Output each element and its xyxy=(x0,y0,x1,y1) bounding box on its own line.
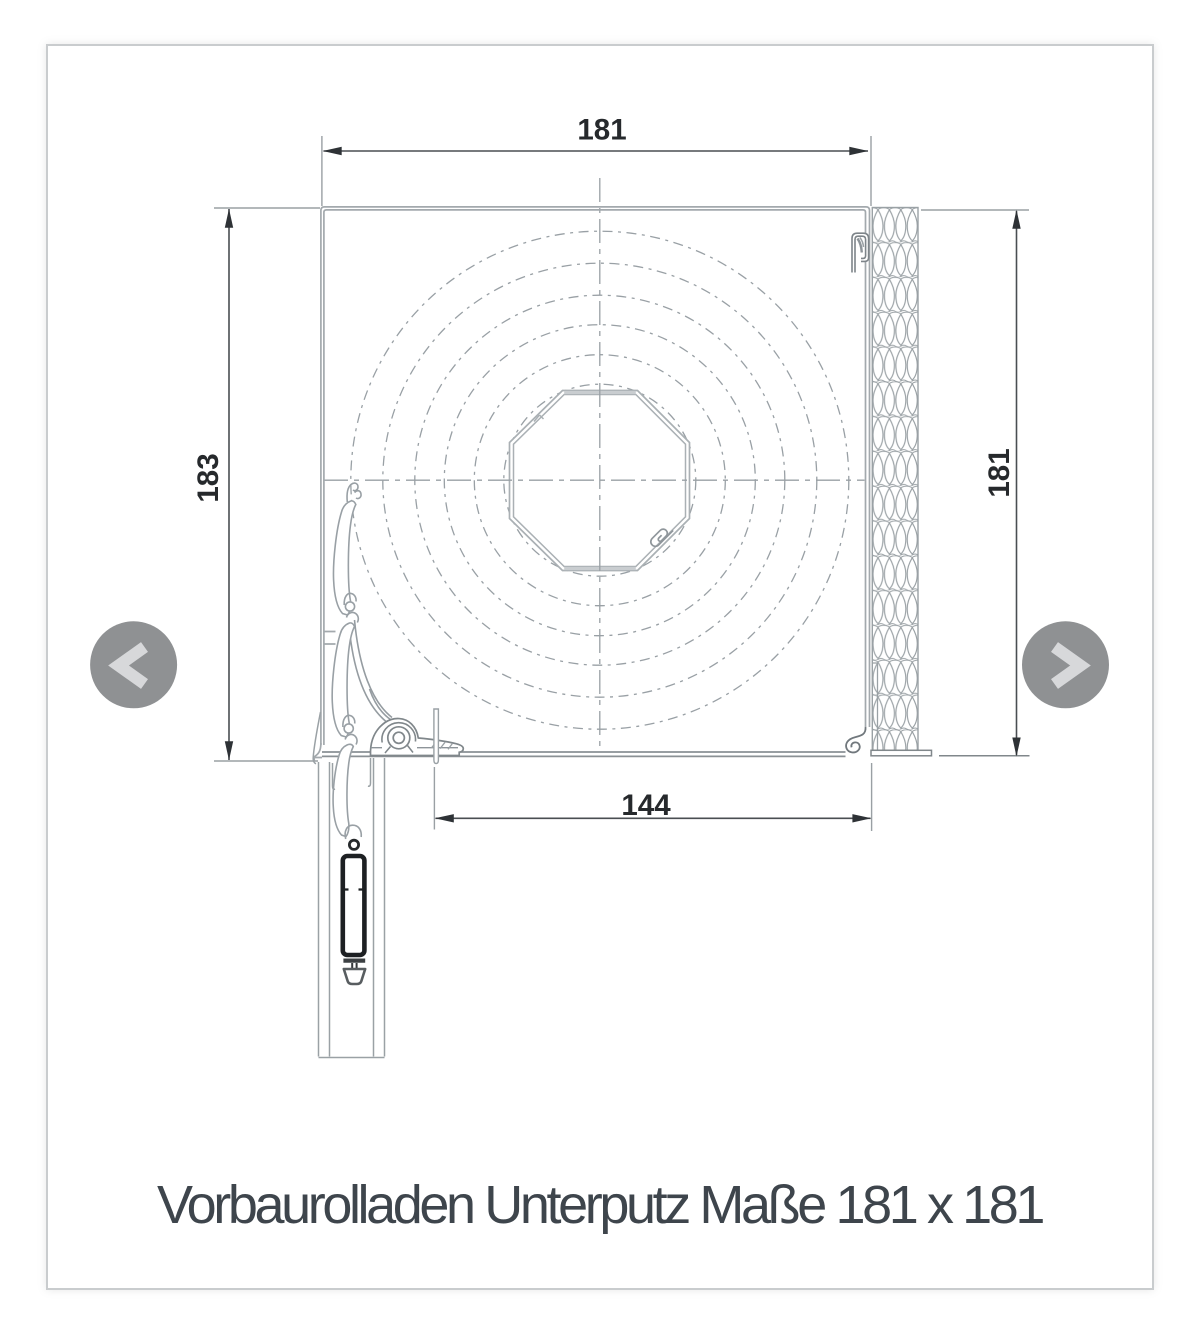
svg-text:181: 181 xyxy=(983,448,1016,497)
svg-text:183: 183 xyxy=(192,453,225,502)
svg-text:144: 144 xyxy=(621,789,671,822)
svg-text:181: 181 xyxy=(577,114,626,147)
